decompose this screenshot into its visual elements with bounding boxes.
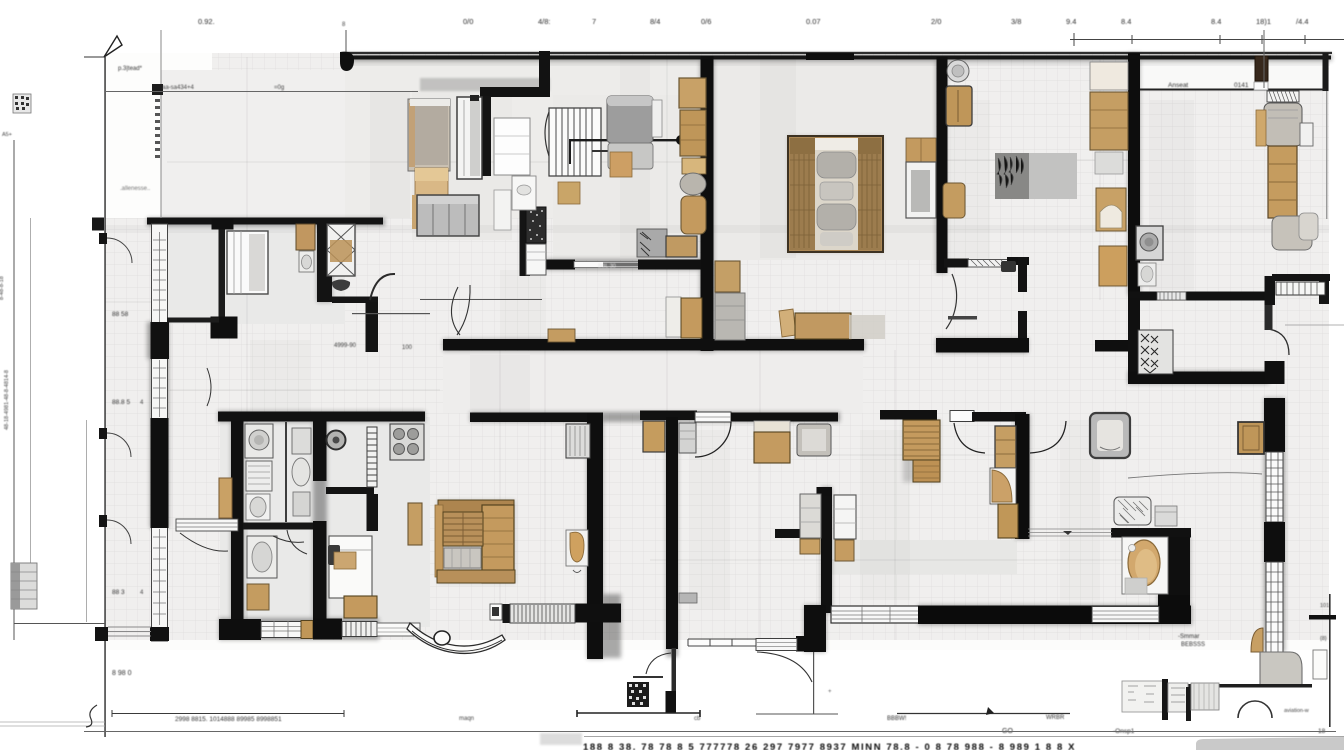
svg-text:aa-sa434+4: aa-sa434+4: [162, 85, 195, 91]
svg-text:cb: cb: [694, 716, 701, 722]
svg-text:48-18-4981-48-8-4814-8: 48-18-4981-48-8-4814-8: [4, 370, 10, 430]
svg-text:8-48-8-18: 8-48-8-18: [0, 276, 5, 300]
svg-text:3/8: 3/8: [1011, 17, 1021, 26]
svg-text:BBL 30: BBL 30: [598, 264, 616, 270]
svg-text:9.4: 9.4: [1066, 17, 1076, 26]
svg-text:7: 7: [592, 17, 596, 26]
svg-text:0.92.: 0.92.: [198, 17, 215, 26]
svg-text:8.4: 8.4: [1121, 17, 1131, 26]
svg-text:0/0: 0/0: [463, 17, 473, 26]
svg-text:BBBW!: BBBW!: [887, 716, 907, 722]
svg-text:88 3: 88 3: [112, 589, 125, 596]
svg-text:100: 100: [402, 345, 413, 351]
svg-text:101: 101: [1320, 603, 1329, 609]
svg-text:.allenesse..: .allenesse..: [120, 186, 151, 192]
svg-text:Anseat: Anseat: [1168, 82, 1188, 89]
svg-text:0/6: 0/6: [701, 17, 711, 26]
svg-text:p.3|tead*: p.3|tead*: [118, 66, 143, 72]
svg-text:{8}: {8}: [1320, 636, 1327, 642]
svg-text:0141: 0141: [1234, 82, 1249, 89]
svg-text:2/0: 2/0: [931, 17, 941, 26]
svg-text:2998 8815. 1014888 89985 8998: 2998 8815. 1014888 89985 8998851: [175, 716, 282, 723]
svg-text:188 8 38. 78 78 8 5 777778 26: 188 8 38. 78 78 8 5 777778 26 297 7977 8…: [583, 742, 1076, 750]
svg-text:=0g: =0g: [274, 85, 284, 91]
svg-text:BEBSSS: BEBSSS: [1181, 642, 1205, 648]
svg-text:aviation-w: aviation-w: [1284, 708, 1309, 714]
svg-text:0.07: 0.07: [806, 17, 821, 26]
svg-text:A5+: A5+: [2, 132, 12, 138]
svg-text:88.8 5: 88.8 5: [112, 399, 130, 406]
svg-text:8 98 0: 8 98 0: [112, 670, 132, 677]
svg-text:+: +: [828, 689, 832, 695]
svg-text:8.4: 8.4: [1211, 17, 1221, 26]
svg-text:4999-90: 4999-90: [334, 343, 357, 349]
svg-text:4/8:: 4/8:: [538, 17, 551, 26]
svg-text:WRBR: WRBR: [1046, 715, 1065, 721]
svg-text:88 58: 88 58: [112, 311, 129, 318]
svg-text:-Smmar: -Smmar: [1178, 634, 1199, 640]
svg-text:8/4: 8/4: [650, 17, 660, 26]
svg-text:/4.4: /4.4: [1296, 17, 1309, 26]
svg-text:maqn: maqn: [459, 716, 474, 722]
svg-text:18)1: 18)1: [1256, 17, 1271, 26]
